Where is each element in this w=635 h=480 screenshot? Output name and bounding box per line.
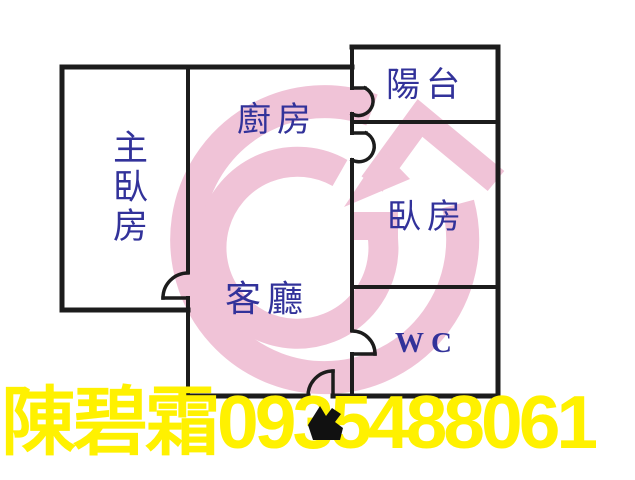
agent-name: 陳碧霜	[1, 380, 217, 464]
master-bedroom-door	[163, 273, 188, 298]
agent-phone: 0935488061	[217, 380, 594, 464]
door-arc	[163, 273, 188, 298]
bedroom-door	[352, 133, 374, 162]
room-label-balcony: 陽台	[352, 57, 500, 106]
room-label-wc: WC	[352, 327, 502, 360]
room-label-bedroom: 臥房	[352, 189, 502, 238]
contact-banner: 陳碧霜0935488061	[1, 386, 635, 480]
room-label-living-room: 客廳	[188, 270, 346, 322]
door-arc	[352, 133, 374, 162]
room-label-kitchen: 廚房	[200, 92, 354, 141]
room-label-master-bedroom: 主臥房	[102, 129, 153, 246]
floor-plan-page: 主臥房 廚房 陽台 臥房 客廳 WC 陳碧霜0935488061	[0, 0, 635, 480]
